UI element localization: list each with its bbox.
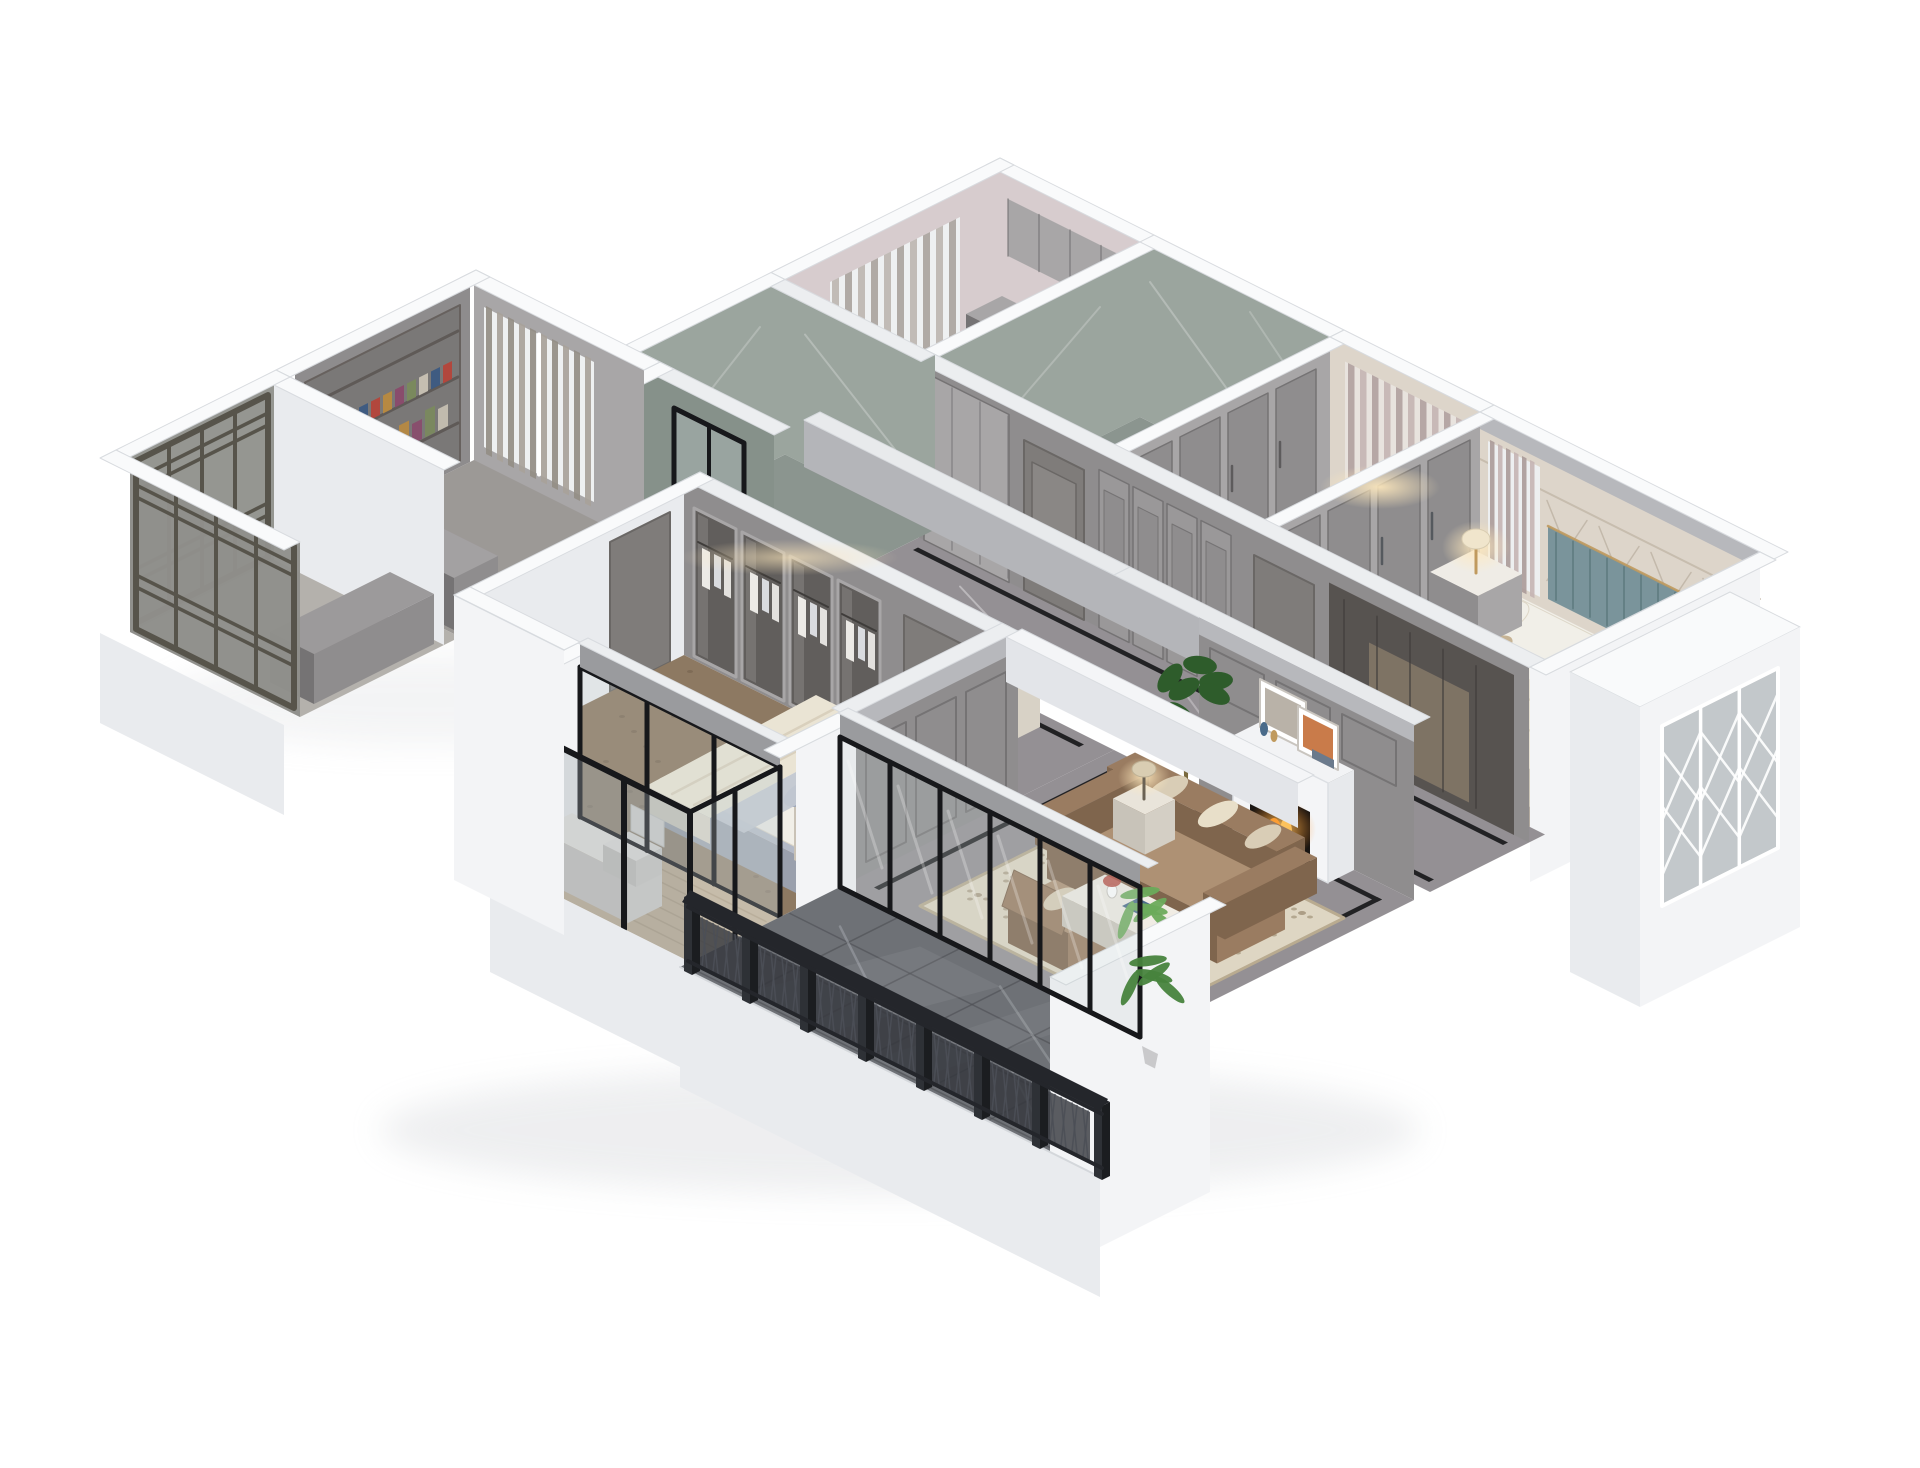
apartment-cutaway-render [0, 0, 1920, 1468]
study-curtain [552, 339, 558, 490]
hanging-shirt [772, 583, 779, 623]
bedroom2-curtain [1514, 452, 1519, 590]
hanging-shirt [810, 602, 817, 638]
rug-motif [1307, 916, 1313, 919]
study-curtain [541, 334, 547, 485]
study-curtain [574, 350, 580, 501]
study-curtain [530, 328, 536, 479]
curtain-fold [936, 226, 943, 354]
rug-motif [1291, 908, 1297, 911]
study-curtain [508, 317, 514, 468]
room-lattice-balcony [100, 370, 460, 815]
study-curtain [563, 345, 569, 496]
study-curtain [519, 323, 525, 474]
bay-south-face [1570, 672, 1640, 1007]
wardrobe-glow [679, 540, 899, 576]
bedroom2-curtain [1522, 456, 1527, 594]
rug-motif [1298, 911, 1306, 915]
curtain-fold [949, 219, 956, 347]
hanging-shirt [820, 607, 827, 647]
master-south-wall [454, 595, 564, 935]
hanging-shirt [762, 578, 769, 614]
study-curtain [585, 356, 591, 507]
rug-motif [1291, 916, 1297, 919]
study-curtain [486, 306, 492, 457]
bedroom2-curtain [1506, 448, 1511, 586]
hanging-shirt [750, 572, 758, 614]
mantel-bottle [1271, 730, 1278, 742]
hanging-shirt [798, 596, 806, 638]
isometric-floorplan-svg [0, 0, 1920, 1468]
lamp-shade [1462, 529, 1490, 549]
hanging-shirt [868, 631, 875, 671]
book-spine [425, 406, 435, 438]
hanging-shirt [858, 626, 865, 662]
curtain-fold [923, 232, 930, 360]
mantel-bottle [1260, 722, 1268, 736]
lamp-shade [1132, 761, 1156, 777]
bay-window [1570, 592, 1800, 1007]
carpet-dot [687, 670, 693, 673]
fireplace-body-side-r [1328, 770, 1354, 883]
hanging-shirt [846, 620, 854, 662]
bedroom2-curtain [1530, 460, 1535, 598]
study-curtain [497, 312, 503, 463]
